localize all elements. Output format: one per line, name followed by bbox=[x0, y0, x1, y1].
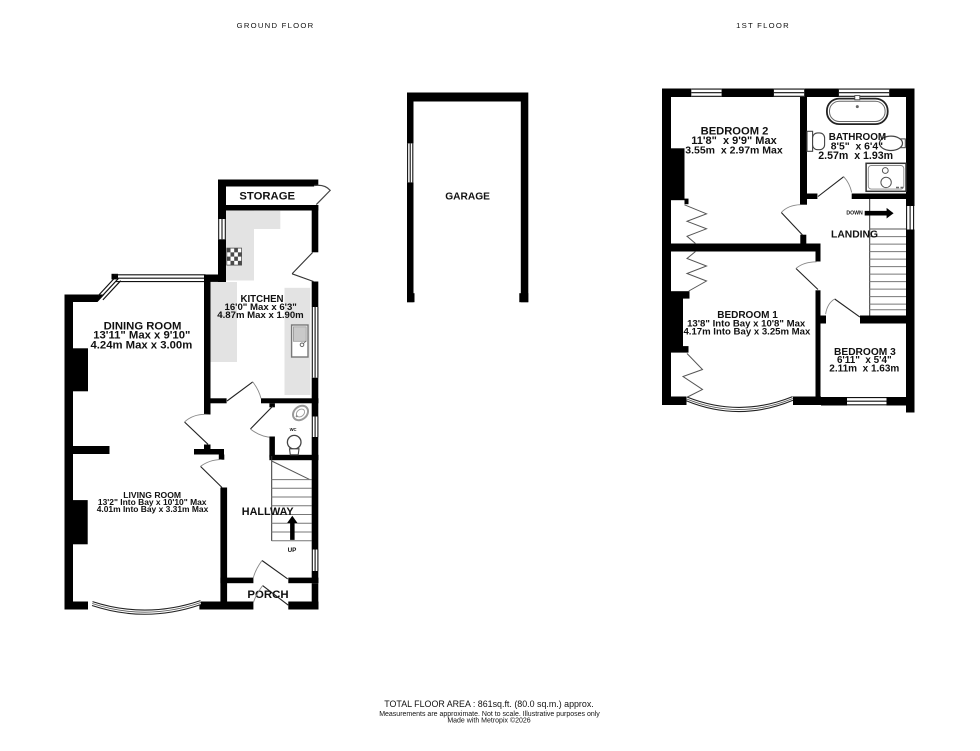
svg-text:2.11m x 1.63m: 2.11m x 1.63m bbox=[829, 364, 899, 375]
svg-text:4.24m Max x 3.00m: 4.24m Max x 3.00m bbox=[91, 340, 193, 352]
svg-text:4.17m Into Bay x 3.25m Max: 4.17m Into Bay x 3.25m Max bbox=[683, 327, 811, 338]
svg-text:LANDING: LANDING bbox=[831, 229, 878, 240]
svg-text:1ST FLOOR: 1ST FLOOR bbox=[736, 21, 790, 30]
svg-text:4.01m Into Bay x 3.31m Max: 4.01m Into Bay x 3.31m Max bbox=[97, 504, 209, 514]
svg-text:2.57m x 1.93m: 2.57m x 1.93m bbox=[818, 150, 893, 162]
svg-text:GARAGE: GARAGE bbox=[445, 192, 490, 203]
svg-text:HALLWAY: HALLWAY bbox=[242, 506, 295, 518]
svg-text:DOWN: DOWN bbox=[846, 211, 863, 217]
svg-text:UP: UP bbox=[288, 547, 297, 554]
svg-text:3.55m x 2.97m Max: 3.55m x 2.97m Max bbox=[685, 145, 783, 157]
svg-text:WC: WC bbox=[290, 427, 297, 432]
svg-text:4.87m Max x 1.90m: 4.87m Max x 1.90m bbox=[217, 310, 303, 321]
svg-text:GROUND FLOOR: GROUND FLOOR bbox=[237, 21, 315, 30]
svg-text:Made with Metropix ©2026: Made with Metropix ©2026 bbox=[447, 716, 530, 724]
svg-text:STORAGE: STORAGE bbox=[239, 191, 295, 203]
svg-text:PORCH: PORCH bbox=[247, 589, 288, 601]
svg-text:TOTAL FLOOR AREA : 861sq.ft. (: TOTAL FLOOR AREA : 861sq.ft. (80.0 sq.m.… bbox=[384, 699, 593, 709]
